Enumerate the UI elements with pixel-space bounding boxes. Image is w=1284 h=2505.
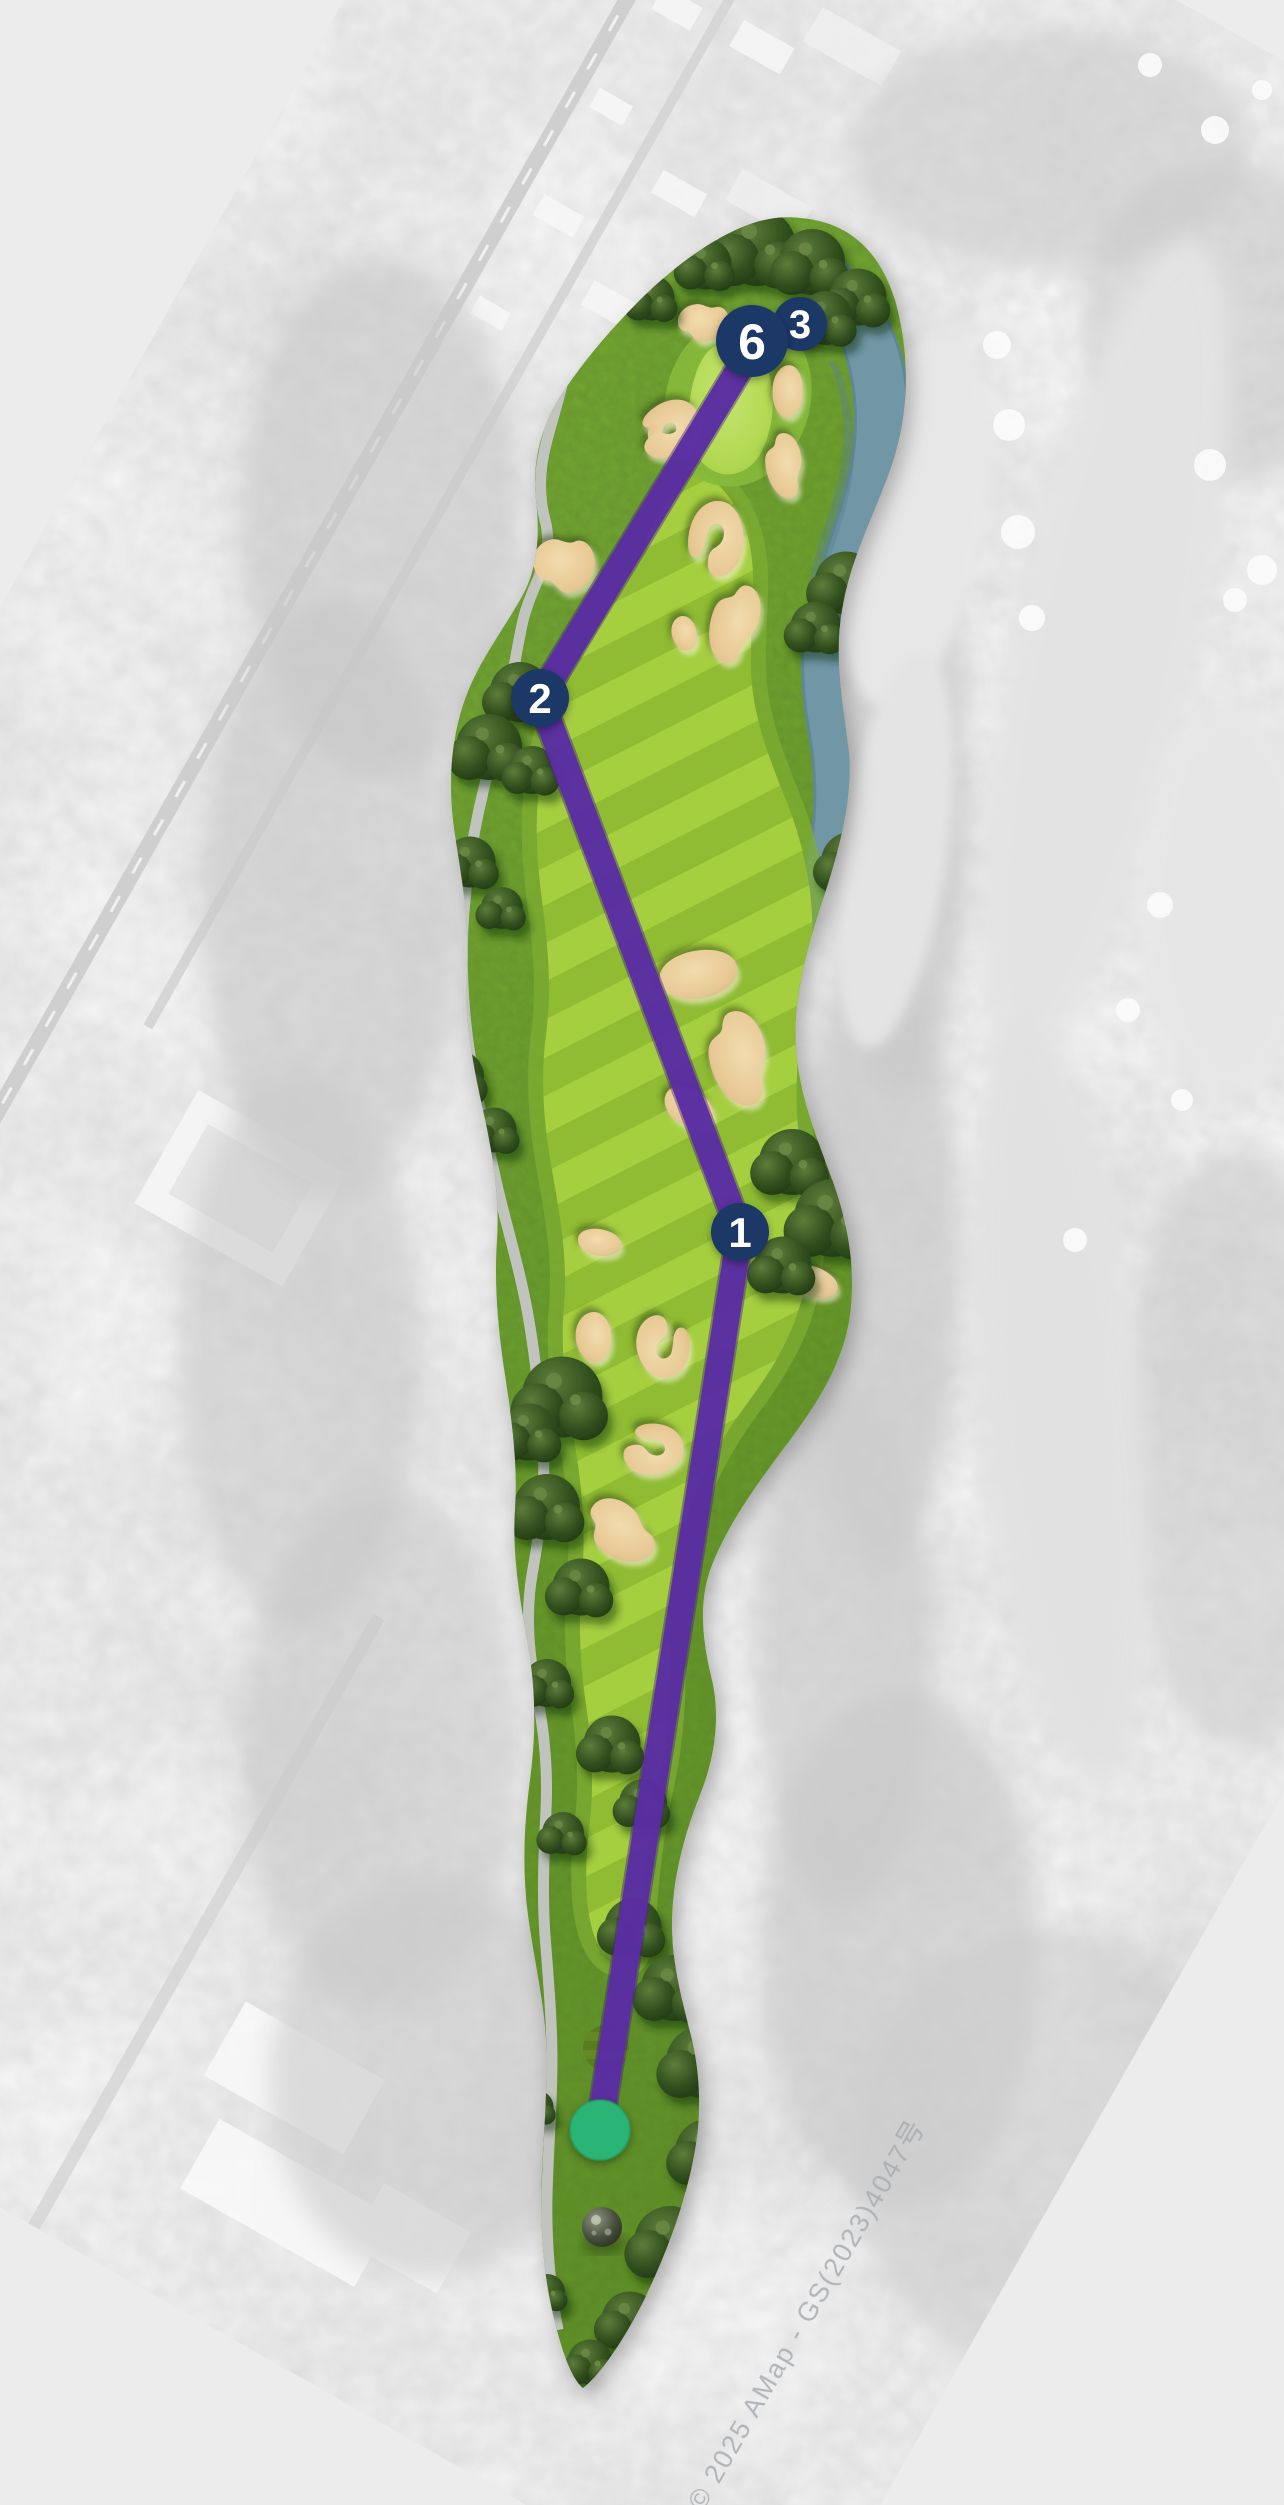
golf-hole-map-screen: 3 6 2 1 © 2025 AMap - GS(2023)4047号 [0, 0, 1284, 2505]
marker-1-label: 1 [728, 1209, 751, 1256]
distance-marker-1[interactable]: 1 [711, 1203, 769, 1261]
map-canvas[interactable]: 3 6 2 1 © 2025 AMap - GS(2023)4047号 [0, 0, 1284, 2505]
marker-3-label: 3 [789, 303, 811, 347]
distance-marker-6[interactable]: 6 [716, 305, 788, 377]
marker-6-label: 6 [738, 314, 766, 370]
tee-position-marker[interactable] [570, 2100, 630, 2160]
distance-marker-2[interactable]: 2 [511, 669, 569, 727]
marker-2-label: 2 [528, 675, 551, 722]
